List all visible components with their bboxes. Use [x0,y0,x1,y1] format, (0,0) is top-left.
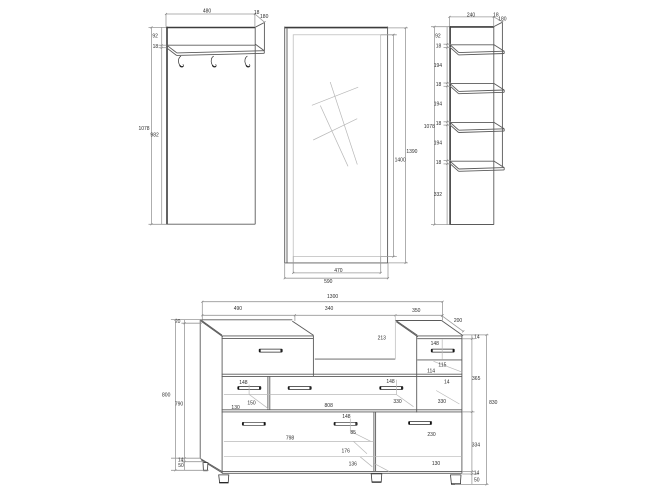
svg-text:330: 330 [393,399,402,405]
svg-text:1300: 1300 [327,294,338,300]
svg-text:18: 18 [153,44,159,50]
svg-text:50: 50 [474,477,480,483]
svg-text:350: 350 [412,308,421,314]
svg-text:136: 136 [349,461,358,467]
svg-text:334: 334 [472,443,481,449]
svg-text:148: 148 [342,414,351,420]
svg-text:332: 332 [434,192,443,198]
svg-text:790: 790 [175,401,184,407]
svg-text:85: 85 [350,430,356,436]
svg-text:14: 14 [444,380,450,386]
svg-text:800: 800 [162,393,171,399]
svg-text:150: 150 [247,400,256,406]
svg-text:213: 213 [378,336,387,342]
svg-text:194: 194 [434,140,443,146]
svg-text:1390: 1390 [406,149,417,155]
svg-text:808: 808 [325,403,334,409]
svg-text:1400: 1400 [395,157,406,163]
svg-text:365: 365 [472,376,481,382]
svg-text:92: 92 [152,33,158,39]
svg-text:180: 180 [260,14,269,20]
svg-text:590: 590 [324,279,333,285]
svg-text:114: 114 [427,369,435,375]
svg-text:1078: 1078 [138,126,149,132]
svg-text:340: 340 [325,306,334,312]
svg-text:194: 194 [434,102,443,108]
svg-text:18: 18 [436,121,442,127]
svg-text:148: 148 [386,379,395,385]
svg-text:18: 18 [436,82,442,88]
svg-text:50: 50 [178,463,184,469]
svg-text:14: 14 [474,471,480,477]
svg-text:1078: 1078 [424,124,435,130]
svg-text:470: 470 [334,268,343,274]
svg-text:330: 330 [438,399,447,405]
svg-text:230: 230 [427,432,436,438]
svg-text:200: 200 [454,318,463,324]
svg-text:92: 92 [435,33,441,39]
svg-text:830: 830 [489,400,498,406]
svg-text:14: 14 [474,335,480,341]
svg-text:148: 148 [239,380,248,386]
svg-text:130: 130 [231,405,240,411]
svg-text:115: 115 [438,363,446,369]
svg-text:240: 240 [467,12,476,18]
svg-text:480: 480 [203,8,212,14]
svg-text:176: 176 [342,449,351,455]
svg-text:18: 18 [436,160,442,166]
svg-text:180: 180 [498,17,507,23]
svg-text:194: 194 [434,63,443,69]
svg-text:148: 148 [431,341,440,347]
svg-text:130: 130 [432,461,441,467]
svg-text:798: 798 [286,435,295,441]
svg-text:982: 982 [150,133,159,139]
svg-text:490: 490 [234,306,243,312]
svg-text:18: 18 [436,43,442,49]
